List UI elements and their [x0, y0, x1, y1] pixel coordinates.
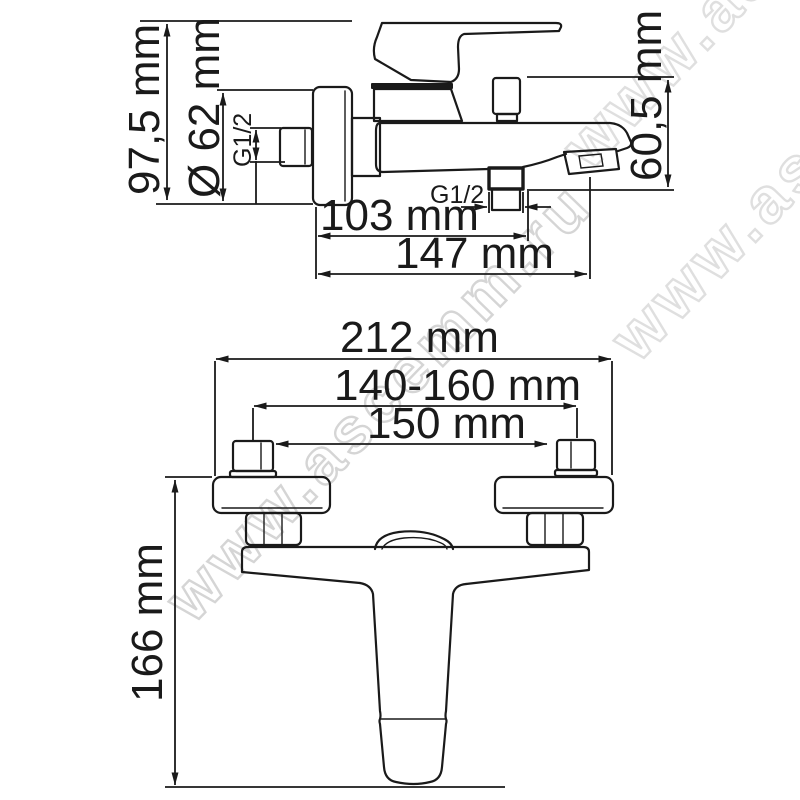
front-hex-nut-right-facets: [545, 514, 563, 544]
front-handle-grip: [360, 583, 466, 784]
side-inlet-nipple: [280, 128, 312, 166]
dim-label-166: 166 mm: [123, 543, 172, 702]
dim-label-147: 147 mm: [395, 229, 554, 278]
dim-label-g12-outlet: G1/2: [430, 181, 484, 209]
dim-label-150: 150 mm: [367, 399, 526, 448]
front-eccentric-right: [557, 440, 595, 470]
dim-label-212: 212 mm: [340, 313, 499, 362]
front-eccentric-right-collar: [555, 470, 597, 476]
dim-label-60-5: 60,5 mm: [622, 10, 671, 181]
drawing-svg: www.ascemm.ru www.ascemm.ru www.ascemm.r…: [0, 0, 800, 800]
side-cartridge-housing: [374, 89, 462, 121]
side-diverter-knob-foot: [497, 114, 517, 121]
side-diverter-knob: [493, 78, 520, 114]
technical-drawing-page: www.ascemm.ru www.ascemm.ru www.ascemm.r…: [0, 0, 800, 800]
side-wall-flange: [313, 87, 352, 205]
side-handle-lever: [374, 23, 561, 82]
front-hex-nut-right: [527, 513, 583, 545]
dim-label-62: Ø 62 mm: [180, 17, 229, 198]
side-shower-outlet-thread: [489, 168, 523, 189]
front-body-bar: [242, 547, 589, 584]
dim-label-g12-inlet: G1/2: [229, 113, 257, 167]
dim-label-97-5: 97,5 mm: [120, 24, 169, 195]
